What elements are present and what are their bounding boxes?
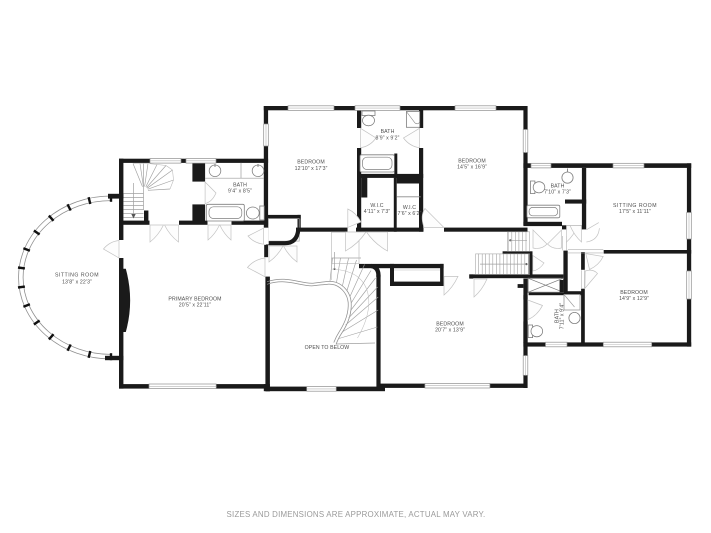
svg-text:SITTING ROOM: SITTING ROOM — [55, 273, 99, 279]
svg-text:OPEN TO BELOW: OPEN TO BELOW — [305, 345, 350, 351]
svg-text:SITTING ROOM: SITTING ROOM — [613, 203, 657, 209]
svg-text:BATH: BATH — [381, 129, 395, 135]
svg-text:9’4” x 8’5”: 9’4” x 8’5” — [228, 189, 252, 195]
svg-text:SIZES AND DIMENSIONS ARE APPRO: SIZES AND DIMENSIONS ARE APPROXIMATE, AC… — [227, 510, 486, 519]
svg-text:BEDROOM: BEDROOM — [458, 158, 486, 164]
svg-text:BEDROOM: BEDROOM — [436, 321, 464, 327]
svg-text:7’11” x 9’4”: 7’11” x 9’4” — [559, 303, 565, 330]
svg-text:20’5” x 22’11”: 20’5” x 22’11” — [179, 303, 212, 309]
svg-text:BATH: BATH — [233, 182, 247, 188]
svg-text:W.I.C: W.I.C — [403, 205, 416, 211]
svg-text:12’10” x 17’3”: 12’10” x 17’3” — [295, 166, 328, 172]
svg-text:PRIMARY BEDROOM: PRIMARY BEDROOM — [168, 297, 221, 303]
svg-text:8’9” x 9’2”: 8’9” x 9’2” — [376, 135, 400, 141]
svg-text:20’7” x 13’9”: 20’7” x 13’9” — [435, 328, 465, 334]
svg-text:4’11” x 7’3”: 4’11” x 7’3” — [364, 209, 391, 215]
svg-text:13’8” x 22’3”: 13’8” x 22’3” — [62, 280, 92, 286]
svg-text:14’5” x 16’9”: 14’5” x 16’9” — [457, 165, 487, 171]
svg-text:BATH: BATH — [551, 184, 565, 190]
svg-text:W.I.C: W.I.C — [370, 203, 383, 209]
svg-text:BEDROOM: BEDROOM — [297, 159, 325, 165]
svg-text:14’9” x 12’9”: 14’9” x 12’9” — [619, 296, 649, 302]
svg-text:BEDROOM: BEDROOM — [620, 290, 648, 296]
svg-text:7’10” x 7’3”: 7’10” x 7’3” — [544, 190, 571, 196]
svg-text:17’5” x 11’11”: 17’5” x 11’11” — [619, 209, 651, 215]
svg-text:7’6” x 6’2”: 7’6” x 6’2” — [398, 211, 422, 217]
